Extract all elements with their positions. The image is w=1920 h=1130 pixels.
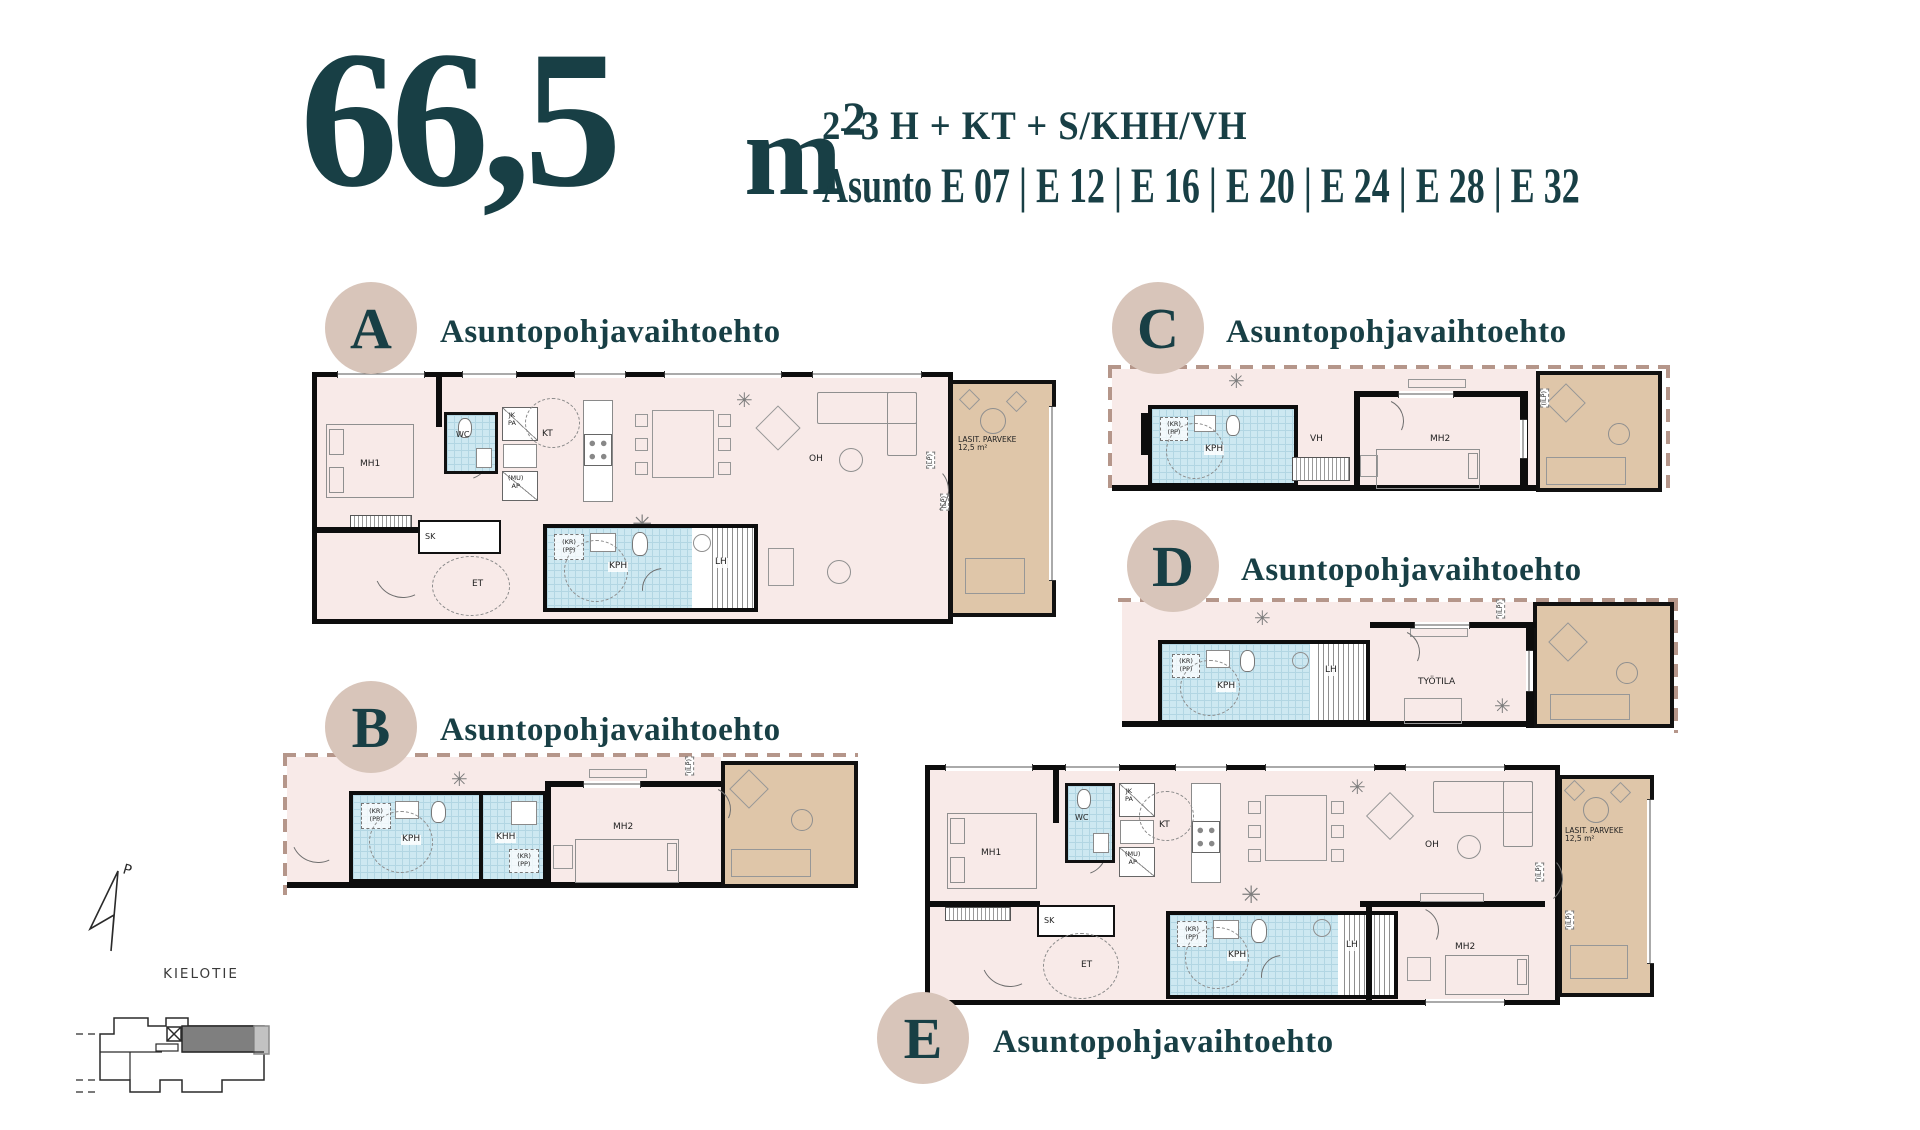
balcony-sofa (1546, 457, 1626, 485)
pillow (329, 467, 344, 493)
ilp-label: (ILP) (1565, 911, 1574, 930)
room-label-mh2: MH2 (1430, 435, 1450, 445)
variant-title-d: Asuntopohjavaihtoehto (1241, 552, 1582, 589)
plan-boundary-dashed (1674, 598, 1678, 733)
toilet (1077, 789, 1091, 809)
window (812, 371, 922, 378)
room-label-kph: KPH (1204, 445, 1224, 455)
bed (1376, 449, 1480, 489)
badge-d: D (1127, 520, 1219, 612)
room-label-oh: OH (809, 455, 823, 465)
floor-plan-page: 66,5 m 2 2–3 H + KT + S/KHH/VH Asunto E … (0, 0, 1920, 1130)
floorplan-e: LASIT. PARVEKE12,5 m² (ILP) (ILP) MH1 WC… (925, 765, 1685, 1005)
ilp-label: (ILP) (685, 757, 694, 776)
toilet (431, 801, 446, 823)
room-label-mh1: MH1 (981, 849, 1001, 859)
balcony-label: LASIT. PARVEKE12,5 m² (958, 436, 1050, 453)
room-label-vh: VH (1310, 435, 1323, 445)
room-label-kph: KPH (1216, 682, 1236, 692)
room-label-wc: WC (1075, 813, 1089, 822)
wall (1366, 907, 1372, 1000)
turning-circle (1139, 791, 1194, 841)
street-label: KIELOTIE (146, 966, 256, 982)
toilet (632, 532, 648, 556)
window (1398, 391, 1454, 398)
ilp-label: (ILP) (1496, 600, 1505, 619)
window (664, 371, 782, 378)
site-plan (70, 984, 330, 1114)
toilet (1240, 650, 1255, 672)
turning-circle (525, 398, 580, 448)
room-label-tyotila: TYÖTILA (1418, 678, 1455, 688)
balcony-table (1616, 662, 1638, 684)
jk-pa-label: JKPA (1125, 788, 1133, 804)
badge-b-letter: B (352, 694, 391, 761)
shower-drain (1313, 919, 1331, 937)
chair (1248, 801, 1261, 814)
window (1526, 650, 1533, 692)
chair (718, 438, 731, 451)
kr-pp-box: (KR)(PP) (509, 849, 539, 873)
dining-table (1265, 795, 1327, 861)
variant-title-c: Asuntopohjavaihtoehto (1226, 314, 1567, 351)
balcony-sofa (1550, 694, 1630, 720)
wall (545, 781, 551, 888)
balcony-label: LASIT. PARVEKE12,5 m² (1565, 827, 1653, 844)
room-label-et: ET (472, 580, 483, 590)
wall (1141, 413, 1148, 455)
pillow (1468, 453, 1478, 479)
wall (930, 901, 1040, 907)
chair (718, 462, 731, 475)
balcony-table (980, 408, 1006, 434)
dresser (1407, 957, 1431, 981)
variant-title-e: Asuntopohjavaihtoehto (993, 1024, 1334, 1061)
badge-c-letter: C (1137, 295, 1179, 362)
tv-bench (1408, 379, 1466, 388)
dresser (1360, 455, 1378, 477)
desk (1404, 698, 1462, 724)
plant-icon: ✳ (451, 769, 468, 789)
room-label-lh: LH (1345, 941, 1359, 951)
room-label-khh: KHH (495, 833, 516, 843)
apartment-numbers-line: Asunto E 07 | E 12 | E 16 | E 20 | E 24 … (822, 156, 1580, 214)
sofa-chaise (1503, 781, 1533, 847)
chair (718, 414, 731, 427)
wall (436, 372, 442, 427)
window (1065, 764, 1120, 771)
room-label-mh2: MH2 (1455, 943, 1475, 953)
north-arrow-icon: P (80, 855, 152, 957)
balcony-lounge (965, 558, 1025, 594)
window (574, 371, 626, 378)
plant-icon: ✳ (1228, 371, 1245, 391)
chair (635, 462, 648, 475)
window (945, 764, 1033, 771)
wardrobe (945, 907, 1011, 921)
jk-pa-label: JKPA (508, 412, 516, 428)
window (1049, 406, 1056, 581)
turning-circle (432, 556, 510, 616)
tv-bench (589, 769, 647, 778)
chair (635, 438, 648, 451)
sink-unit (503, 444, 537, 468)
dresser (553, 845, 573, 869)
chair (1331, 849, 1344, 862)
mu-ap-label: (MU)AP (1125, 851, 1140, 867)
balcony-table (791, 809, 813, 831)
plant-icon: ✳ (1494, 696, 1511, 716)
floorplan-b: (ILP) (KR)(PP) KPH KHH (KR)(PP) MH2 ✳ (283, 753, 858, 895)
badge-e-letter: E (904, 1005, 943, 1072)
room-label-sk: SK (425, 532, 435, 541)
window (462, 371, 517, 378)
toilet (1226, 415, 1240, 436)
room-label-et: ET (1081, 961, 1092, 971)
window (1647, 799, 1654, 964)
badge-b: B (325, 681, 417, 773)
floorplan-a: LASIT. PARVEKE12,5 m² (LP) (LP) MH1 WC J… (312, 372, 1056, 624)
shower-drain (693, 534, 711, 552)
floorplan-c: (ILP) (KR)(PP) KPH VH MH2 ✳ (1108, 365, 1670, 497)
variant-title-a: Asuntopohjavaihtoehto (440, 314, 781, 351)
room-label-lh: LH (1324, 666, 1338, 676)
stove (1192, 821, 1220, 853)
window (1520, 419, 1527, 459)
pillow (950, 857, 965, 883)
chair (1331, 825, 1344, 838)
room-label-kt: KT (1159, 821, 1170, 831)
balcony-table (1608, 423, 1630, 445)
window (1425, 999, 1505, 1006)
lh-closet (1314, 644, 1366, 720)
stove (584, 434, 612, 466)
room-label-kt: KT (542, 430, 553, 440)
variant-title-b: Asuntopohjavaihtoehto (440, 712, 781, 749)
mu-ap-label: (MU)AP (508, 475, 523, 491)
chair (1248, 849, 1261, 862)
room-label-kph: KPH (608, 562, 628, 572)
sink (476, 448, 492, 468)
pillow (667, 843, 677, 871)
bed (575, 839, 679, 883)
room-label-oh: OH (1425, 841, 1439, 851)
cabinet (768, 548, 794, 586)
floorplan-d: (ILP) (KR)(PP) KPH LH TYÖTILA ✳ ✳ (1118, 598, 1678, 733)
plan-boundary-dashed (283, 753, 287, 895)
side-table (827, 560, 851, 584)
badge-a-letter: A (350, 295, 392, 362)
plant-icon: ✳ (1349, 777, 1366, 797)
plant-icon: ✳ (1254, 608, 1271, 628)
wall (1053, 765, 1059, 823)
balcony-lounge (1570, 945, 1628, 979)
pillow (950, 818, 965, 844)
room-label-wc: WC (456, 430, 470, 439)
room-label-lh: LH (714, 558, 728, 568)
balcony-sofa (731, 849, 811, 877)
sink (1093, 833, 1109, 853)
tv-bench (1420, 893, 1484, 902)
window (1405, 764, 1505, 771)
wall (317, 527, 418, 533)
room-label-mh2: MH2 (613, 823, 633, 833)
chair (635, 414, 648, 427)
plan-boundary-dashed (1108, 365, 1670, 369)
window (583, 781, 641, 788)
badge-a: A (325, 282, 417, 374)
badge-d-letter: D (1152, 533, 1194, 600)
plan-boundary-dashed (1108, 365, 1112, 497)
wardrobe (1292, 457, 1350, 481)
chair (1248, 825, 1261, 838)
pillow (329, 429, 344, 455)
toilet (1251, 919, 1267, 943)
side-table (1457, 835, 1481, 859)
sofa-chaise (887, 392, 917, 456)
shower-drain (1292, 652, 1309, 669)
plant-icon: ✳ (1241, 883, 1261, 907)
room-label-kph: KPH (1227, 951, 1247, 961)
ilp-label: (ILP) (1540, 389, 1549, 408)
window (1265, 764, 1375, 771)
chair (1331, 801, 1344, 814)
tv-bench (1410, 628, 1468, 637)
room-label-sk: SK (1044, 916, 1054, 925)
lh-closet (708, 528, 754, 608)
north-label: P (121, 861, 134, 879)
dining-table (652, 410, 714, 478)
window (1175, 764, 1227, 771)
side-table (839, 448, 863, 472)
plan-boundary-dashed (1666, 365, 1670, 497)
room-label-kph: KPH (401, 835, 421, 845)
badge-e: E (877, 992, 969, 1084)
pillow (1517, 959, 1527, 985)
apartment-type-line: 2–3 H + KT + S/KHH/VH (822, 102, 1248, 149)
plant-icon: ✳ (736, 390, 753, 410)
balcony-table (1583, 797, 1609, 823)
badge-c: C (1112, 282, 1204, 374)
area-value: 66,5 (300, 22, 615, 218)
room-label-mh1: MH1 (360, 460, 380, 470)
washer (511, 801, 537, 825)
